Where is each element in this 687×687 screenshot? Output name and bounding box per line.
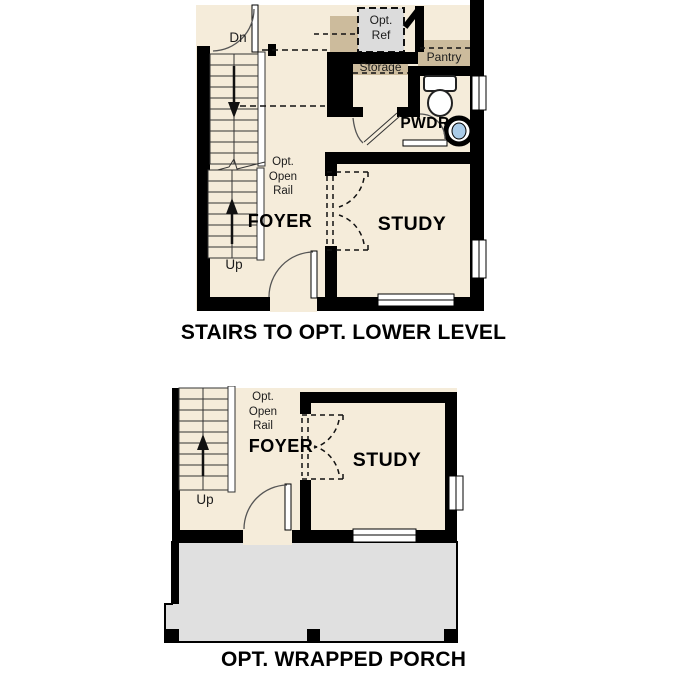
plan-upper: Dn Up Opt. Open Rail FOYER STUDY PWDR St…: [196, 0, 496, 316]
front-door-leaf: [285, 484, 291, 530]
porch-post: [444, 629, 457, 642]
label-opt-open-rail: Opt. Open Rail: [258, 155, 308, 199]
label-foyer: FOYER: [237, 436, 325, 457]
label-rail-line: Rail: [237, 419, 289, 434]
label-rail-line: Opt.: [258, 155, 308, 170]
label-pwdr: PWDR: [394, 115, 456, 133]
label-rail-line: Open: [258, 170, 308, 185]
stairs-down-flight: [210, 52, 265, 166]
porch-post: [307, 629, 320, 642]
front-door-threshold: [243, 528, 292, 545]
caption-lower: OPT. WRAPPED PORCH: [0, 648, 687, 672]
label-study: STUDY: [366, 213, 458, 236]
label-foyer: FOYER: [236, 211, 324, 232]
stairs-up-flight: [179, 386, 235, 492]
toilet-icon: [424, 76, 456, 116]
label-ref-line: Opt.: [360, 13, 402, 28]
label-rail-line: Rail: [258, 184, 308, 199]
label-up: Up: [212, 257, 256, 272]
label-study: STUDY: [341, 449, 433, 472]
label-rail-line: Open: [237, 405, 289, 420]
plan-lower-drawing: [163, 386, 468, 662]
porch: [165, 542, 457, 642]
label-rail-line: Opt.: [237, 390, 289, 405]
label-pantry: Pantry: [418, 50, 470, 64]
label-opt-open-rail: Opt. Open Rail: [237, 390, 289, 434]
front-door-threshold: [270, 296, 317, 312]
front-door-leaf: [311, 251, 317, 298]
floorplan-page: { "colors": { "floor": "#f5ecda", "wall"…: [0, 0, 687, 687]
plan-lower: Up Opt. Open Rail FOYER STUDY: [163, 386, 468, 662]
label-opt-ref: Opt. Ref: [360, 13, 402, 43]
label-up: Up: [183, 492, 227, 507]
caption-upper: STAIRS TO OPT. LOWER LEVEL: [0, 321, 687, 345]
label-dn: Dn: [218, 30, 258, 45]
label-storage: Storage: [353, 60, 408, 74]
vanity-counter: [403, 140, 447, 146]
label-ref-line: Ref: [360, 28, 402, 43]
porch-post: [166, 629, 179, 642]
